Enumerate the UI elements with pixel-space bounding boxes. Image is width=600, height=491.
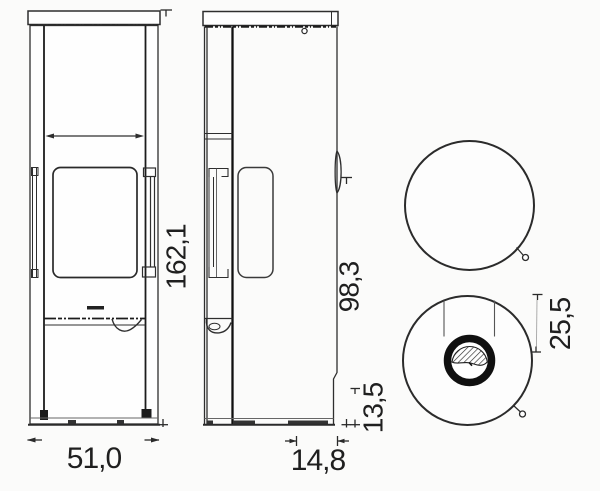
top-view-lower (403, 296, 532, 425)
side-top-knob (302, 28, 307, 33)
logo-mark (87, 306, 104, 310)
drawing-canvas: 162,1 51,0 98,3 13,5 (0, 0, 600, 491)
top-flue-door-knob (514, 406, 526, 418)
side-window (238, 168, 273, 278)
dim-total-height: 162,1 (159, 10, 192, 427)
side-top-plate (203, 12, 338, 26)
dim-recess-depth-label: 14,8 (291, 444, 346, 477)
side-view (203, 12, 341, 425)
top-outline-circle (405, 141, 534, 270)
dim-total-width-label: 51,0 (67, 442, 122, 475)
front-top-plate (28, 11, 160, 25)
dim-recess-depth: 14,8 (285, 436, 349, 477)
dim-total-height-label: 162,1 (161, 224, 192, 289)
top-door-knob (517, 248, 529, 261)
dim-flue-offset-label: 25,5 (545, 298, 577, 350)
stove-technical-drawing: 162,1 51,0 98,3 13,5 (0, 0, 600, 491)
front-view (28, 11, 160, 425)
side-body (205, 27, 338, 425)
dim-flue-height-label: 98,3 (334, 261, 365, 312)
dim-flue-offset: 25,5 (531, 295, 577, 353)
rear-flue-bulge (335, 151, 341, 193)
front-body (30, 26, 158, 425)
top-view-upper (405, 141, 534, 270)
side-latch-lever (205, 319, 233, 333)
dim-recess-height: 13,5 (351, 382, 389, 433)
side-base (203, 419, 335, 425)
side-door-handle (209, 169, 228, 278)
dim-total-width: 51,0 (27, 438, 160, 476)
dim-recess-height-label: 13,5 (358, 382, 389, 433)
